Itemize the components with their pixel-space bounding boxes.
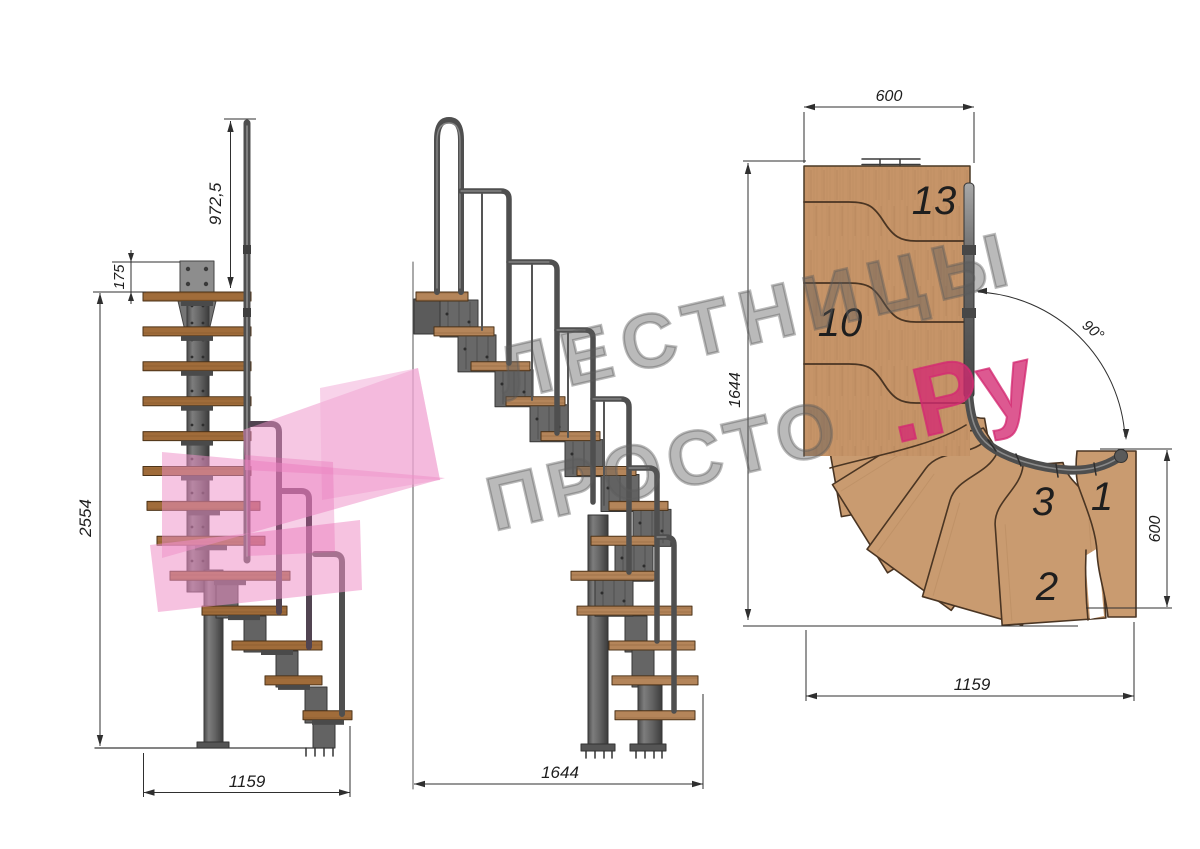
- svg-text:972,5: 972,5: [206, 182, 225, 225]
- svg-text:600: 600: [876, 88, 903, 105]
- svg-text:3: 3: [1032, 480, 1054, 524]
- svg-text:1159: 1159: [954, 675, 991, 694]
- svg-text:1644: 1644: [541, 763, 579, 782]
- svg-text:175: 175: [111, 264, 128, 290]
- svg-text:600: 600: [1147, 516, 1164, 543]
- svg-text:1: 1: [1091, 475, 1113, 519]
- svg-text:1644: 1644: [727, 372, 744, 408]
- svg-text:1159: 1159: [229, 772, 266, 791]
- svg-text:2: 2: [1035, 565, 1058, 609]
- svg-text:13: 13: [912, 179, 957, 223]
- svg-text:2554: 2554: [76, 499, 95, 538]
